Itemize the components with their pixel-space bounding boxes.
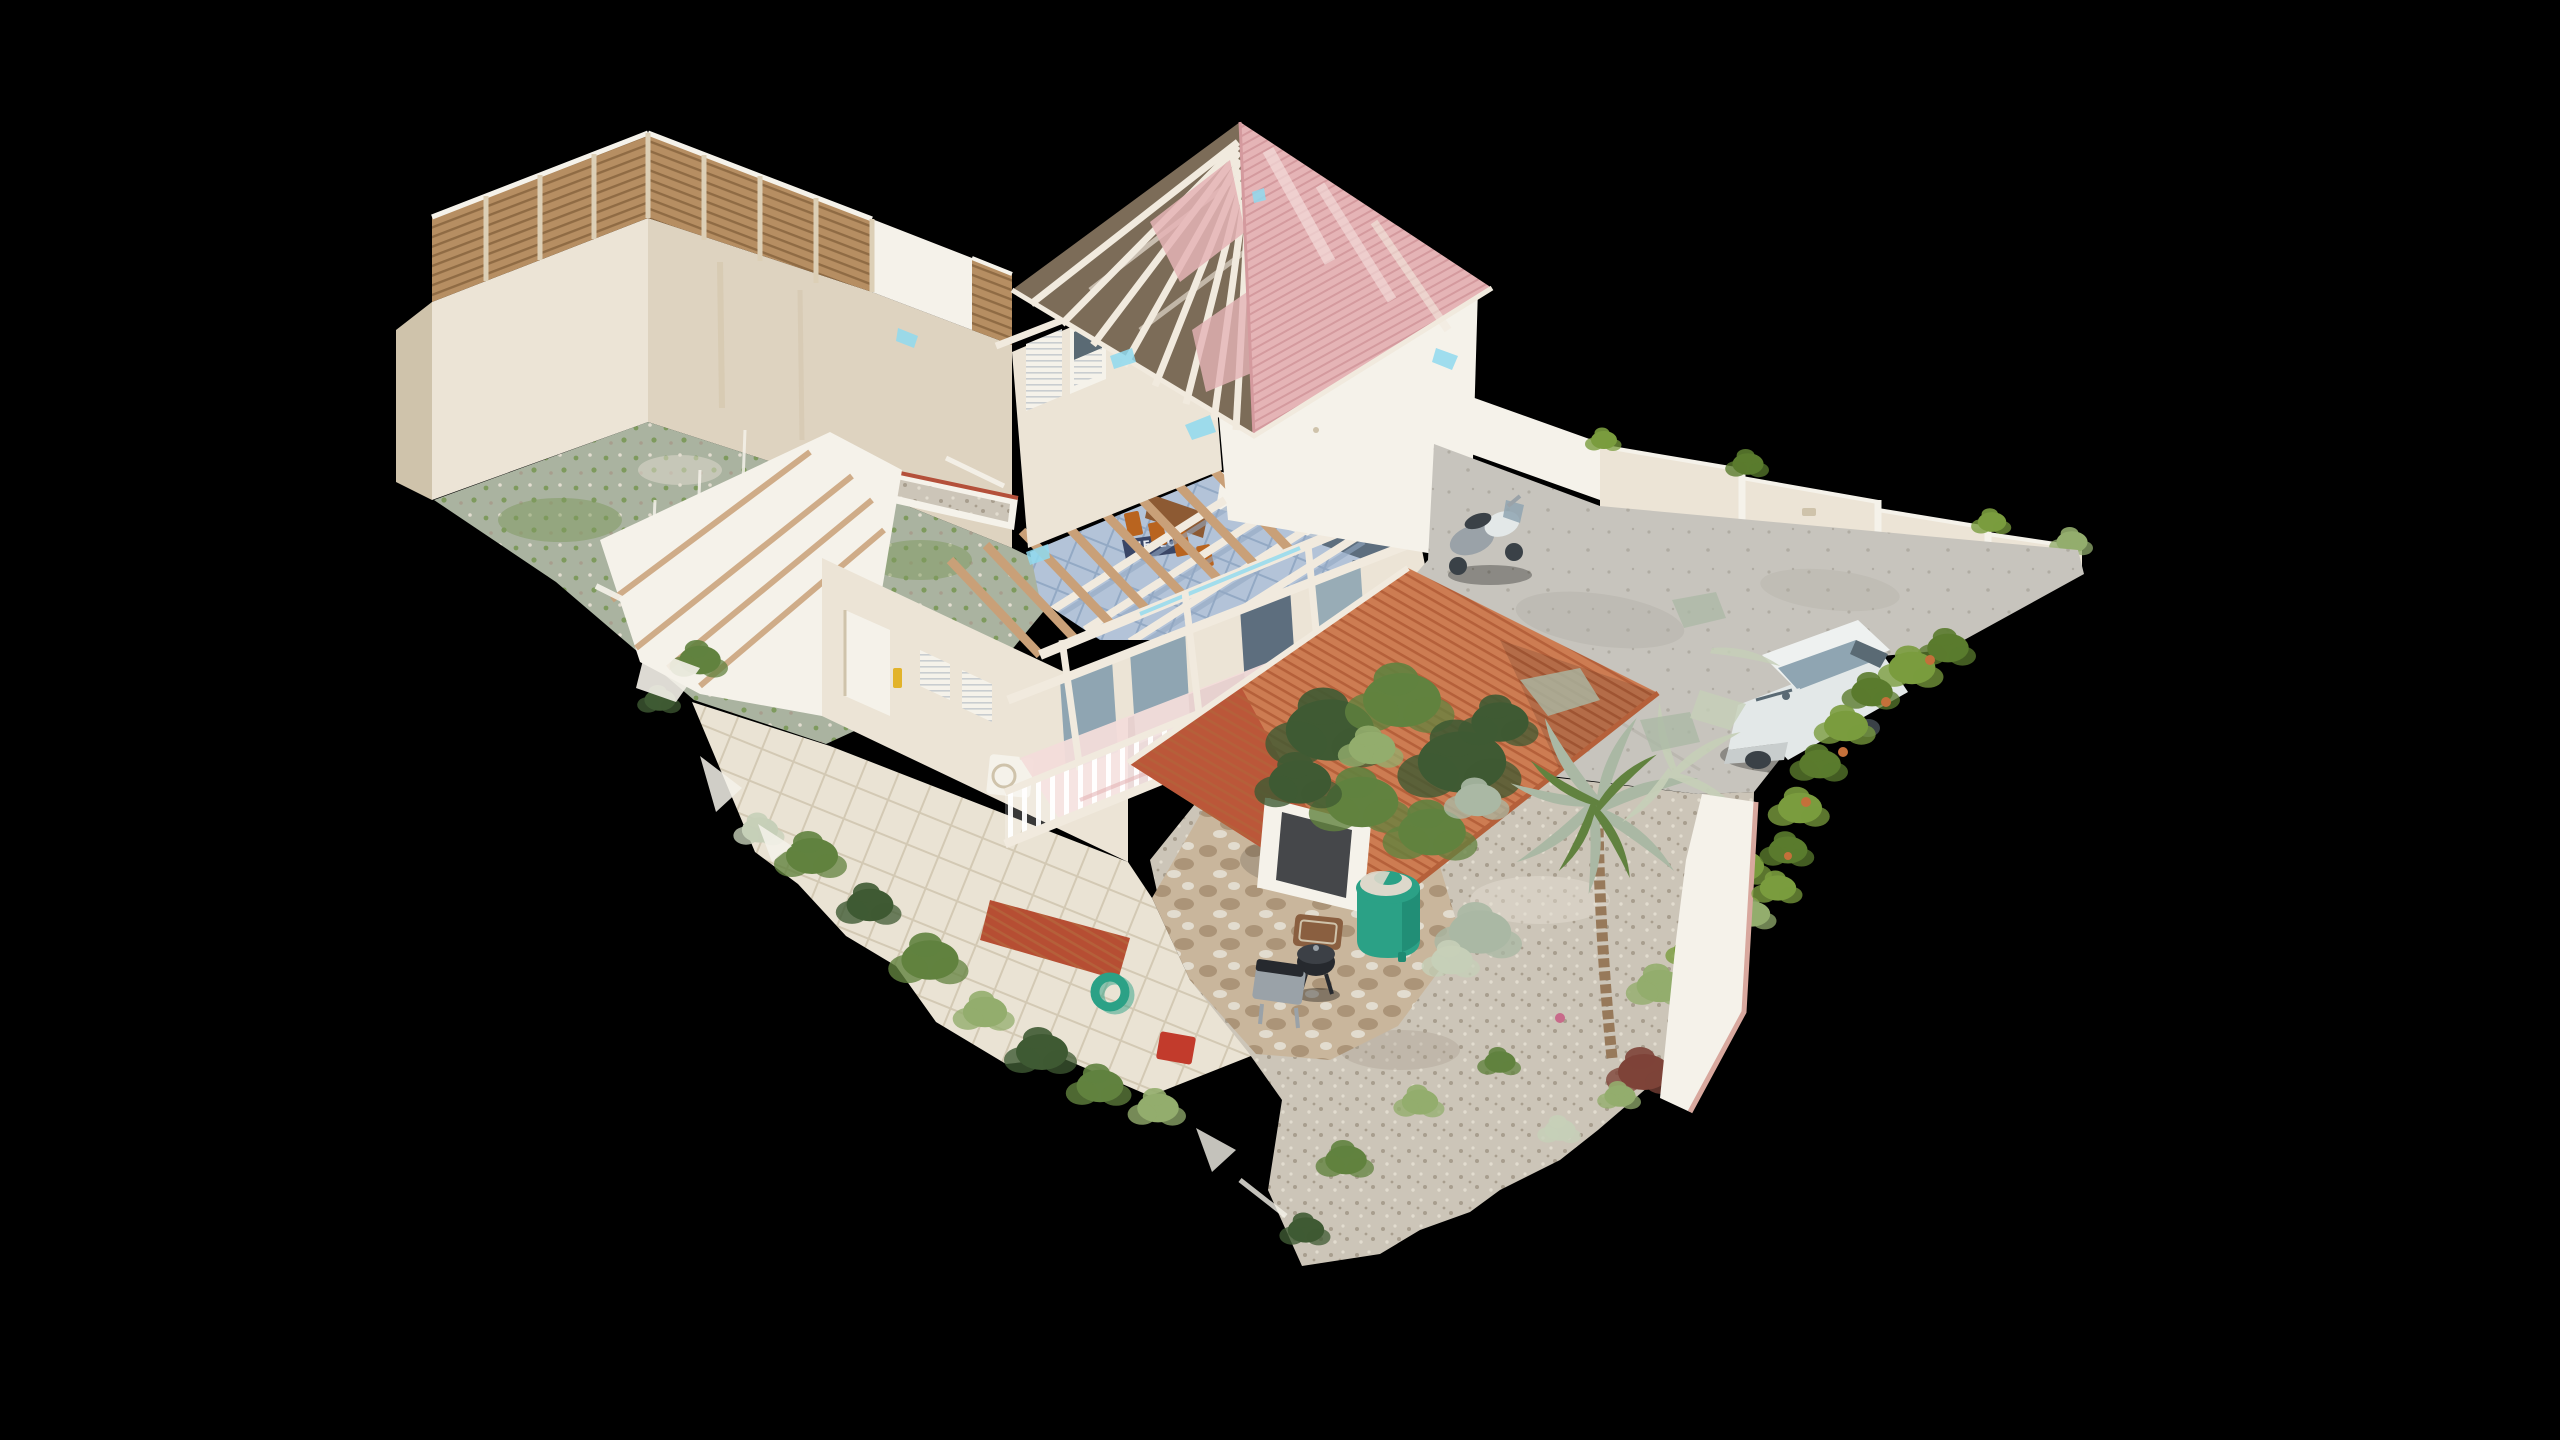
gas-bottle	[893, 668, 902, 688]
dollhouse-viewport[interactable]: HELLO	[0, 0, 2560, 1440]
water-tank	[1356, 871, 1420, 962]
